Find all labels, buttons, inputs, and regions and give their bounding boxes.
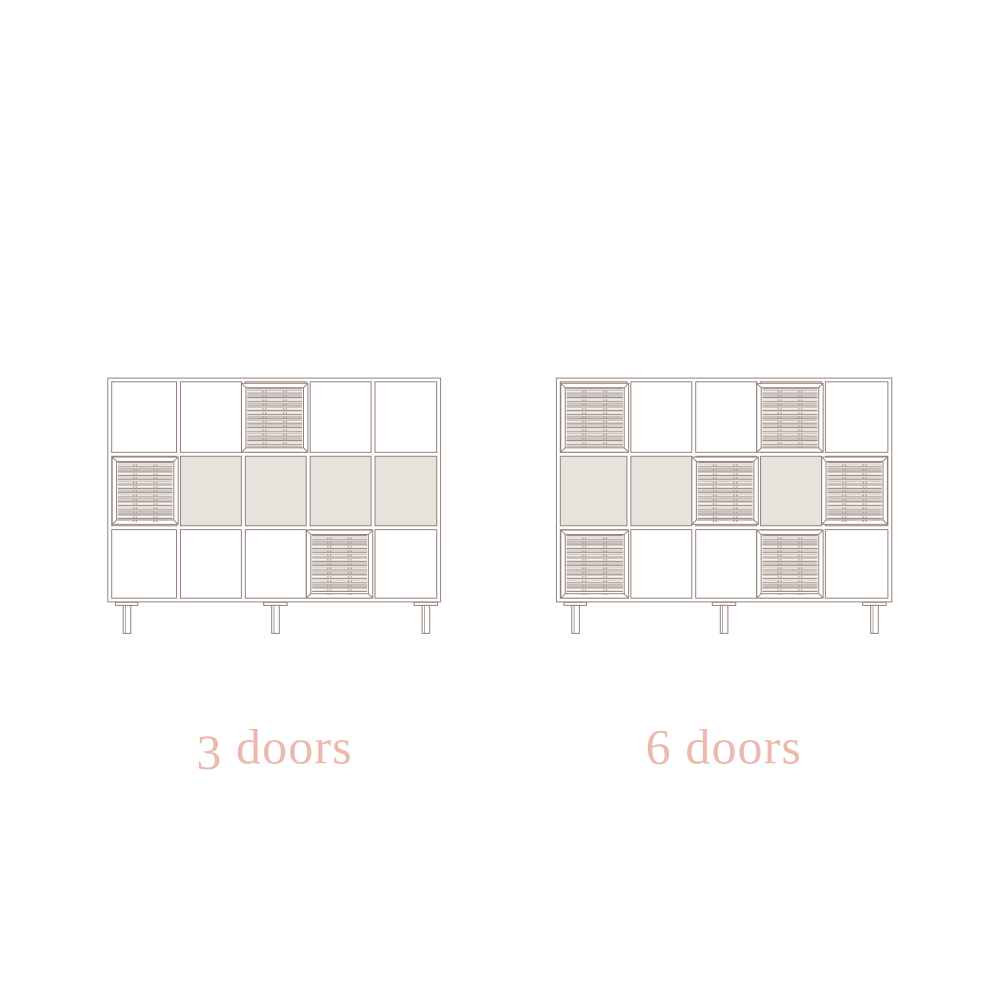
svg-text:6 doors: 6 doors — [646, 718, 802, 774]
svg-text:3 doors: 3 doors — [196, 718, 352, 780]
